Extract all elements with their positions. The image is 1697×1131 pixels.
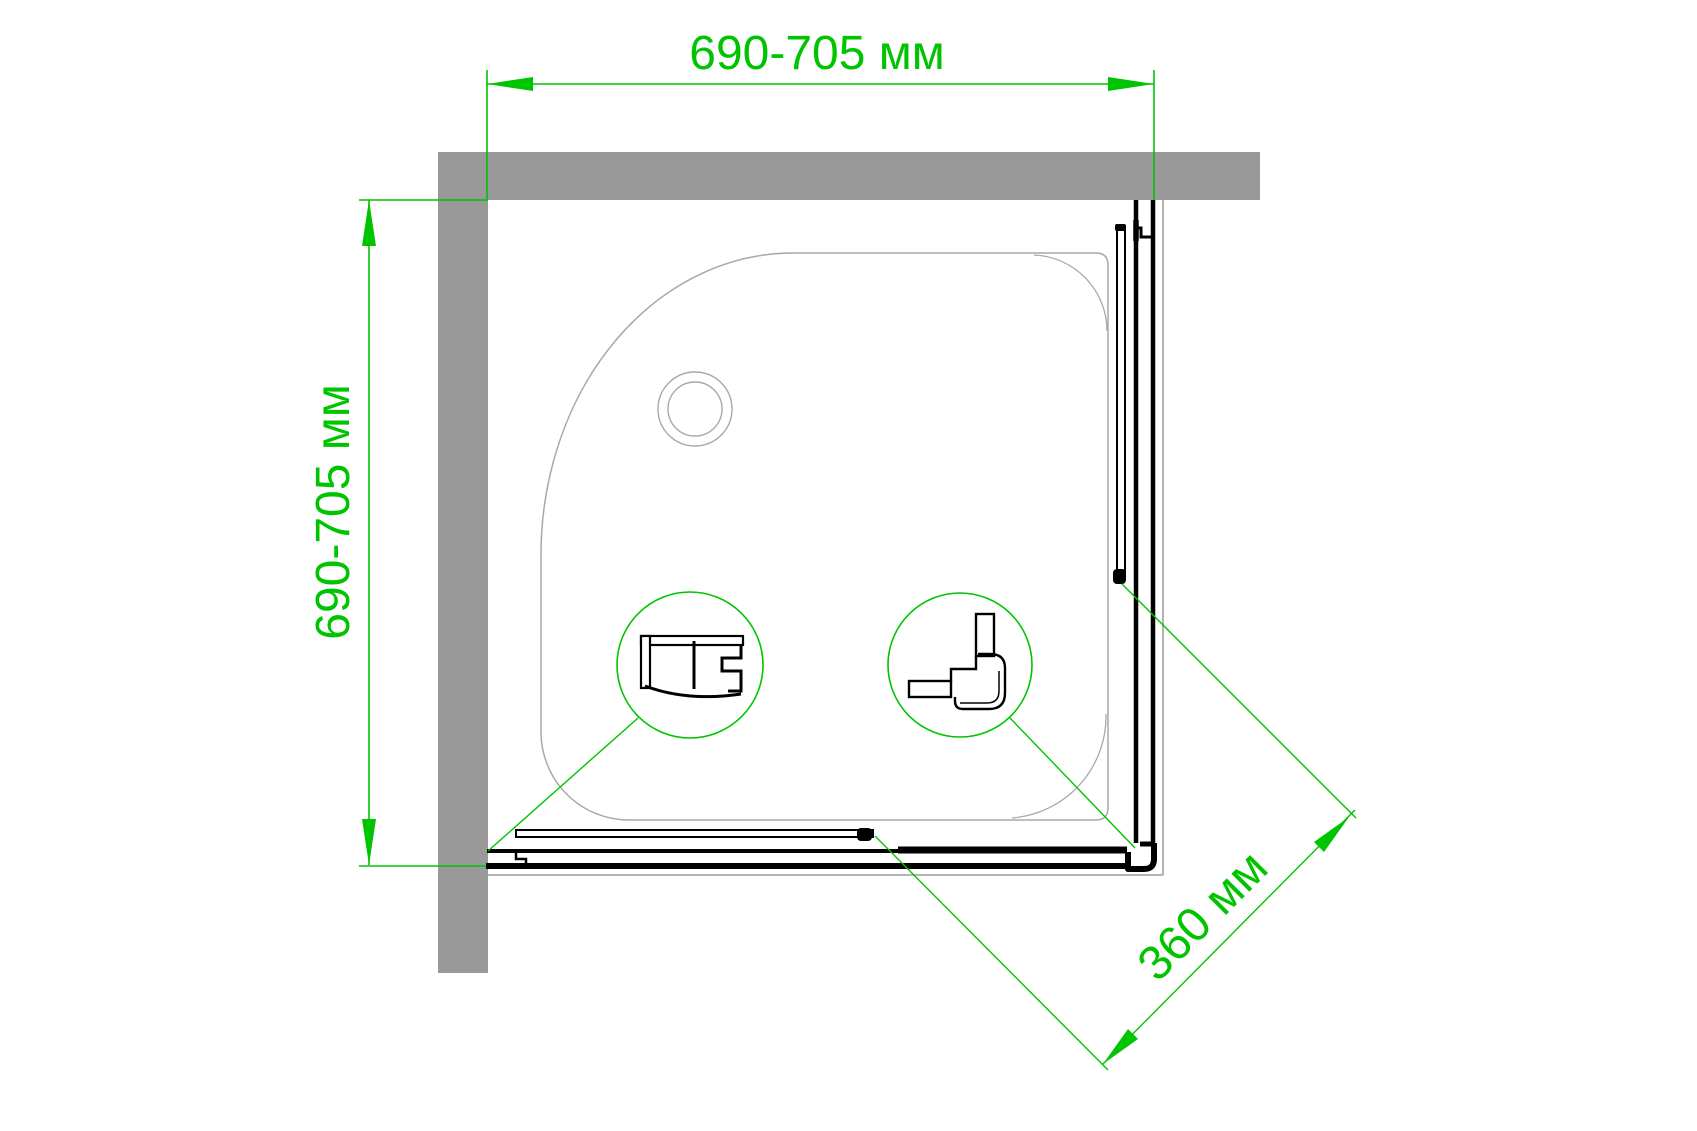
height-arrow-top [362, 200, 376, 246]
corner-post [1128, 843, 1154, 869]
shower-tray [487, 200, 1163, 875]
width-arrow-left [487, 77, 533, 91]
right-door-glass [1117, 228, 1125, 578]
width-dimension-label: 690-705 мм [689, 27, 945, 80]
left-wall [438, 152, 488, 973]
right-door-handle-cap [1113, 569, 1126, 584]
bottom-door-handle-cap [857, 828, 872, 841]
technical-drawing-canvas: 690-705 мм 690-705 мм 360 мм [0, 0, 1697, 1131]
profile-top-flange [641, 636, 743, 645]
right-wall-bracket-step [1137, 228, 1151, 237]
profile-left-wall [641, 636, 650, 688]
width-arrow-right [1108, 77, 1154, 91]
shower-enclosure-plan: 690-705 мм 690-705 мм 360 мм [0, 0, 1697, 1131]
top-wall [438, 152, 1260, 200]
connector-vertical-tube [976, 614, 994, 656]
entry-dimension-line [1103, 810, 1355, 1064]
connector-horizontal-tube [909, 681, 951, 697]
height-arrow-bottom [362, 819, 376, 865]
tray-outline [541, 253, 1108, 820]
entry-extension-right-door [1122, 584, 1356, 818]
right-door-top-cap [1115, 224, 1126, 231]
entry-arrow-lower [1103, 1029, 1138, 1064]
entry-extension-bottom-door [875, 836, 1108, 1070]
bottom-door-glass [516, 830, 873, 837]
height-dimension-label: 690-705 мм [307, 384, 360, 640]
entry-arrow-upper [1314, 817, 1349, 852]
